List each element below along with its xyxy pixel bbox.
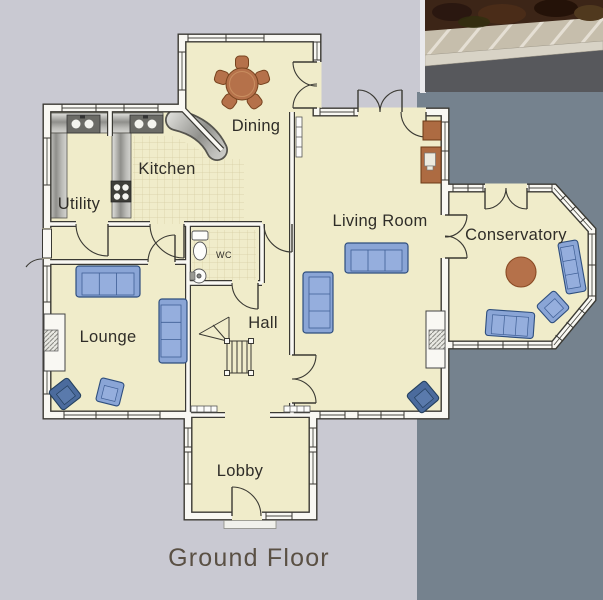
desk <box>421 121 441 183</box>
utility-label: Utility <box>58 195 101 213</box>
dining-table <box>226 68 258 100</box>
round-table <box>506 257 536 287</box>
toilet <box>192 231 208 240</box>
street-photo <box>420 0 603 93</box>
sofa <box>485 309 535 338</box>
kitchen-label: Kitchen <box>138 160 195 178</box>
living-fireplace <box>426 311 445 368</box>
lounge-fireplace <box>44 314 65 371</box>
sofa <box>76 266 140 297</box>
hall-label: Hall <box>248 314 278 332</box>
page-title: Ground Floor <box>168 544 330 572</box>
armchair <box>95 377 124 406</box>
stove <box>111 181 131 202</box>
radiator <box>284 406 310 412</box>
dining-label: Dining <box>232 117 281 135</box>
utility-sink <box>67 115 100 133</box>
lobby-label: Lobby <box>217 462 264 480</box>
radiator <box>296 117 302 157</box>
entrance-step <box>224 521 276 529</box>
sofa <box>159 299 187 363</box>
living-room-label: Living Room <box>332 212 427 230</box>
radiator <box>191 406 217 412</box>
dining-chair <box>236 56 249 69</box>
lounge-label: Lounge <box>80 328 137 346</box>
conservatory-label: Conservatory <box>465 226 567 244</box>
sofa <box>303 272 333 333</box>
side-door-leaf <box>43 229 52 258</box>
wc-label: WC <box>216 250 232 260</box>
ground-floor-plan: Utility Kitchen Dining Living Room Conse… <box>0 0 603 600</box>
kitchen-sink <box>130 115 163 133</box>
sofa <box>345 243 408 273</box>
brochure-page: Utility Kitchen Dining Living Room Conse… <box>0 0 603 600</box>
computer <box>425 153 436 166</box>
